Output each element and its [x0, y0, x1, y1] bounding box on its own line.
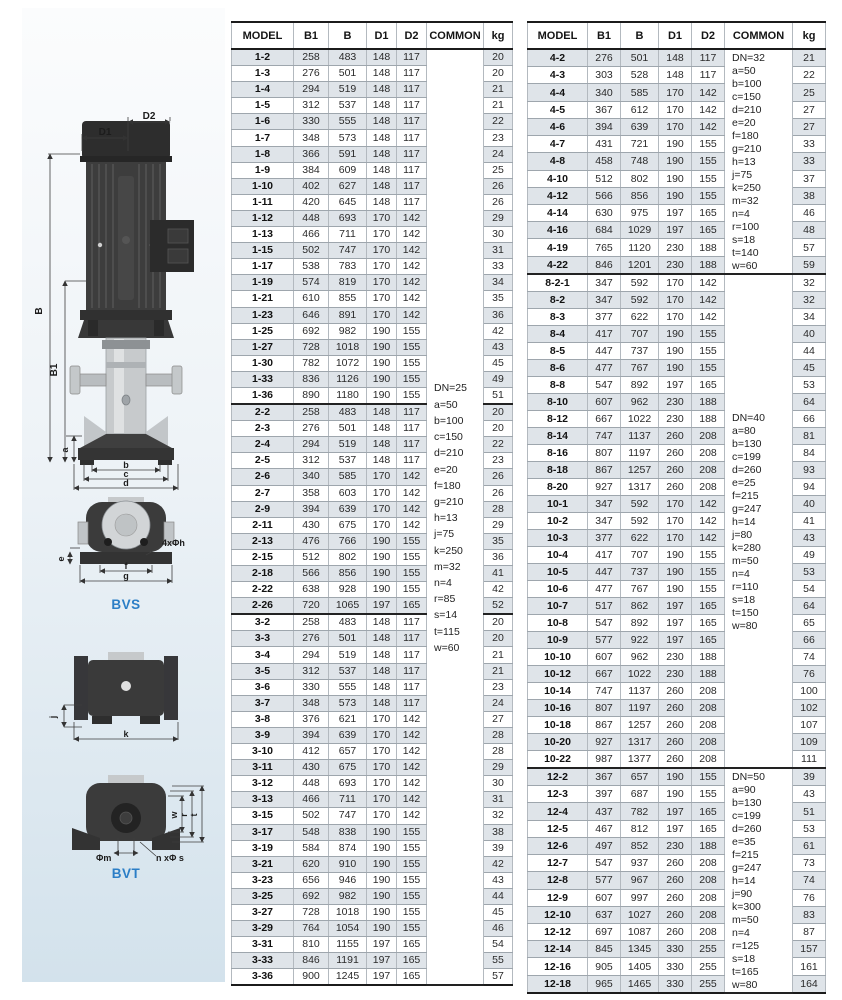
dimension-table-right-container: MODELB1BD1D2COMMONkg4-2276501148117DN=32… [527, 21, 825, 994]
common-dimension-line: s=14 [434, 607, 483, 623]
dim-label-t: t [189, 814, 199, 817]
value-cell: 148 [367, 82, 397, 98]
value-cell: 447 [588, 564, 621, 581]
value-cell: 867 [588, 717, 621, 734]
shackle [88, 320, 98, 336]
value-cell: 42 [484, 856, 513, 872]
model-cell: 3-3 [232, 631, 294, 647]
value-cell: 20 [484, 66, 513, 82]
model-cell: 10-10 [528, 649, 588, 666]
common-dimension-line: n=4 [732, 208, 792, 221]
value-cell: 190 [659, 547, 692, 564]
value-cell: 117 [397, 437, 427, 453]
value-cell: 592 [621, 274, 659, 292]
value-cell: 170 [367, 243, 397, 259]
value-cell: 64 [793, 394, 826, 411]
value-cell: 1257 [621, 462, 659, 479]
model-cell: 10-4 [528, 547, 588, 564]
value-cell: 117 [397, 82, 427, 98]
value-cell: 502 [294, 808, 329, 824]
value-cell: 260 [659, 855, 692, 872]
value-cell: 782 [621, 803, 659, 820]
dimension-table-left-container: MODELB1BD1D2COMMONkg1-2258483148117DN=25… [231, 21, 512, 986]
bolt-hole [140, 538, 148, 546]
value-cell: 155 [397, 566, 427, 582]
value-cell: 155 [397, 856, 427, 872]
value-cell: 21 [484, 82, 513, 98]
value-cell: 573 [329, 695, 367, 711]
value-cell: 466 [294, 792, 329, 808]
model-cell: 12-14 [528, 941, 588, 958]
value-cell: 190 [659, 581, 692, 598]
model-cell: 12-3 [528, 786, 588, 803]
pump-column [106, 338, 146, 434]
common-dimension-line: e=20 [434, 462, 483, 478]
value-cell: 29 [484, 210, 513, 226]
value-cell: 609 [329, 162, 367, 178]
value-cell: 197 [659, 377, 692, 394]
value-cell: 230 [659, 239, 692, 256]
column-header: COMMON [725, 22, 793, 49]
value-cell: 190 [659, 136, 692, 153]
model-cell: 3-25 [232, 888, 294, 904]
value-cell: 675 [329, 760, 367, 776]
value-cell: 61 [793, 837, 826, 854]
model-cell: 2-3 [232, 421, 294, 437]
value-cell: 512 [294, 549, 329, 565]
value-cell: 502 [294, 243, 329, 259]
value-cell: 38 [484, 824, 513, 840]
value-cell: 34 [793, 309, 826, 326]
model-cell: 1-13 [232, 227, 294, 243]
value-cell: 258 [294, 614, 329, 631]
value-cell: 208 [692, 700, 725, 717]
value-cell: 1317 [621, 734, 659, 751]
model-cell: 1-15 [232, 243, 294, 259]
value-cell: 517 [588, 598, 621, 615]
value-cell: 170 [659, 513, 692, 530]
value-cell: 812 [621, 820, 659, 837]
value-cell: 148 [367, 404, 397, 421]
common-dimension-line: d=260 [732, 823, 792, 836]
model-cell: 1-4 [232, 82, 294, 98]
value-cell: 458 [588, 153, 621, 170]
model-cell: 1-27 [232, 339, 294, 355]
value-cell: 165 [692, 598, 725, 615]
bolt-hole [104, 538, 112, 546]
model-cell: 3-19 [232, 840, 294, 856]
value-cell: 142 [397, 727, 427, 743]
motor-flange [80, 310, 172, 320]
value-cell: 721 [621, 136, 659, 153]
value-cell: 965 [588, 975, 621, 993]
model-cell: 10-12 [528, 666, 588, 683]
value-cell: 155 [397, 582, 427, 598]
value-cell: 845 [588, 941, 621, 958]
value-cell: 117 [692, 67, 725, 84]
value-cell: 117 [397, 194, 427, 210]
value-cell: 764 [294, 921, 329, 937]
common-dimension-line: m=50 [732, 555, 792, 568]
value-cell: 22 [484, 114, 513, 130]
column-header: D1 [367, 22, 397, 49]
value-cell: 430 [294, 517, 329, 533]
value-cell: 255 [692, 941, 725, 958]
value-cell: 170 [367, 485, 397, 501]
value-cell: 148 [367, 114, 397, 130]
model-cell: 8-10 [528, 394, 588, 411]
value-cell: 41 [793, 513, 826, 530]
model-cell: 8-2 [528, 292, 588, 309]
value-cell: 142 [692, 513, 725, 530]
value-cell: 637 [588, 906, 621, 923]
model-cell: 3-36 [232, 969, 294, 986]
value-cell: 29 [484, 760, 513, 776]
value-cell: 376 [294, 711, 329, 727]
value-cell: 170 [367, 711, 397, 727]
value-cell: 639 [329, 727, 367, 743]
model-cell: 2-9 [232, 501, 294, 517]
dim-label-r: r [179, 813, 189, 817]
value-cell: 208 [692, 479, 725, 496]
model-cell: 1-25 [232, 323, 294, 339]
value-cell: 592 [621, 292, 659, 309]
value-cell: 347 [588, 292, 621, 309]
value-cell: 394 [294, 501, 329, 517]
value-cell: 836 [294, 371, 329, 387]
model-cell: 12-4 [528, 803, 588, 820]
common-dimension-line: s=18 [732, 234, 792, 247]
common-dimension-line: b=100 [434, 413, 483, 429]
value-cell: 687 [621, 786, 659, 803]
value-cell: 36 [484, 307, 513, 323]
value-cell: 891 [329, 307, 367, 323]
model-cell: 10-3 [528, 530, 588, 547]
value-cell: 190 [659, 187, 692, 204]
model-cell: 3-29 [232, 921, 294, 937]
value-cell: 170 [367, 744, 397, 760]
header-row: MODELB1BD1D2COMMONkg [528, 22, 826, 49]
value-cell: 45 [793, 360, 826, 377]
value-cell: 117 [397, 404, 427, 421]
model-cell: 1-12 [232, 210, 294, 226]
model-cell: 12-16 [528, 958, 588, 975]
common-dimension-line: a=50 [732, 65, 792, 78]
value-cell: 53 [793, 820, 826, 837]
motor-plug [122, 236, 130, 244]
value-cell: 54 [793, 581, 826, 598]
value-cell: 987 [588, 751, 621, 769]
value-cell: 208 [692, 906, 725, 923]
model-cell: 4-10 [528, 170, 588, 187]
foot [140, 716, 160, 724]
base-plate [78, 448, 174, 460]
value-cell: 117 [397, 98, 427, 114]
model-cell: 1-6 [232, 114, 294, 130]
dim-label-j: j [48, 716, 58, 720]
value-cell: 35 [484, 291, 513, 307]
value-cell: 366 [294, 146, 329, 162]
value-cell: 197 [367, 937, 397, 953]
value-cell: 155 [397, 921, 427, 937]
value-cell: 1022 [621, 411, 659, 428]
value-cell: 190 [659, 170, 692, 187]
value-cell: 170 [367, 210, 397, 226]
value-cell: 35 [484, 533, 513, 549]
value-cell: 190 [659, 343, 692, 360]
value-cell: 142 [692, 292, 725, 309]
value-cell: 39 [484, 840, 513, 856]
value-cell: 519 [329, 437, 367, 453]
model-cell: 4-14 [528, 204, 588, 221]
value-cell: 208 [692, 428, 725, 445]
model-cell: 1-23 [232, 307, 294, 323]
value-cell: 430 [294, 760, 329, 776]
value-cell: 64 [793, 598, 826, 615]
value-cell: 117 [397, 631, 427, 647]
model-cell: 8-16 [528, 445, 588, 462]
value-cell: 667 [588, 666, 621, 683]
value-cell: 142 [397, 517, 427, 533]
model-cell: 2-15 [232, 549, 294, 565]
value-cell: 188 [692, 394, 725, 411]
value-cell: 612 [621, 101, 659, 118]
value-cell: 26 [484, 469, 513, 485]
value-cell: 208 [692, 855, 725, 872]
model-cell: 8-18 [528, 462, 588, 479]
value-cell: 190 [659, 768, 692, 786]
model-cell: 1-19 [232, 275, 294, 291]
common-dimension-line: DN=32 [732, 52, 792, 65]
value-cell: 585 [329, 469, 367, 485]
value-cell: 155 [397, 387, 427, 404]
model-cell: 10-5 [528, 564, 588, 581]
model-cell: 4-6 [528, 118, 588, 135]
motor-fan-cover [82, 121, 170, 159]
value-cell: 148 [659, 49, 692, 67]
value-cell: 330 [659, 941, 692, 958]
value-cell: 230 [659, 256, 692, 274]
value-cell: 190 [659, 564, 692, 581]
value-cell: 51 [793, 803, 826, 820]
model-cell: 3-27 [232, 904, 294, 920]
value-cell: 230 [659, 649, 692, 666]
model-cell: 10-7 [528, 598, 588, 615]
model-cell: 1-21 [232, 291, 294, 307]
value-cell: 258 [294, 404, 329, 421]
value-cell: 84 [793, 445, 826, 462]
value-cell: 330 [294, 679, 329, 695]
value-cell: 260 [659, 734, 692, 751]
value-cell: 148 [659, 67, 692, 84]
value-cell: 538 [294, 259, 329, 275]
dim-label-k: k [123, 729, 129, 739]
value-cell: 802 [621, 170, 659, 187]
common-dimension-line: DN=40 [732, 412, 792, 425]
model-cell: 10-14 [528, 683, 588, 700]
value-cell: 142 [692, 118, 725, 135]
value-cell: 66 [793, 411, 826, 428]
value-cell: 117 [397, 647, 427, 663]
value-cell: 30 [484, 227, 513, 243]
value-cell: 25 [793, 84, 826, 101]
value-cell: 1022 [621, 666, 659, 683]
value-cell: 21 [793, 49, 826, 67]
value-cell: 117 [397, 130, 427, 146]
value-cell: 170 [367, 760, 397, 776]
value-cell: 483 [329, 614, 367, 631]
model-cell: 3-5 [232, 663, 294, 679]
value-cell: 807 [588, 700, 621, 717]
value-cell: 982 [329, 888, 367, 904]
value-cell: 49 [793, 547, 826, 564]
value-cell: 260 [659, 479, 692, 496]
value-cell: 83 [793, 906, 826, 923]
value-cell: 1201 [621, 256, 659, 274]
value-cell: 892 [621, 615, 659, 632]
table-row: 12-2367657190155DN=50a=90b=130c=199d=260… [528, 768, 826, 786]
value-cell: 737 [621, 564, 659, 581]
model-cell: 8-2-1 [528, 274, 588, 292]
value-cell: 377 [588, 530, 621, 547]
value-cell: 170 [367, 275, 397, 291]
screw [98, 243, 102, 247]
value-cell: 501 [329, 631, 367, 647]
foot [92, 716, 112, 724]
value-cell: 303 [588, 67, 621, 84]
value-cell: 367 [588, 101, 621, 118]
value-cell: 117 [692, 49, 725, 67]
common-dimension-line: f=180 [434, 478, 483, 494]
value-cell: 155 [397, 824, 427, 840]
value-cell: 358 [294, 485, 329, 501]
common-dimension-line: m=32 [434, 559, 483, 575]
value-cell: 548 [294, 824, 329, 840]
value-cell: 377 [588, 309, 621, 326]
common-dimension-line: m=50 [732, 914, 792, 927]
value-cell: 148 [367, 162, 397, 178]
value-cell: 692 [294, 323, 329, 339]
model-cell: 3-15 [232, 808, 294, 824]
value-cell: 170 [659, 84, 692, 101]
value-cell: 577 [588, 632, 621, 649]
value-cell: 890 [294, 387, 329, 404]
value-cell: 657 [621, 768, 659, 786]
value-cell: 190 [367, 888, 397, 904]
value-cell: 111 [793, 751, 826, 769]
value-cell: 155 [397, 549, 427, 565]
column-header: COMMON [427, 22, 484, 49]
value-cell: 170 [659, 496, 692, 513]
value-cell: 170 [367, 517, 397, 533]
model-cell: 12-10 [528, 906, 588, 923]
value-cell: 188 [692, 411, 725, 428]
model-cell: 12-9 [528, 889, 588, 906]
model-cell: 1-7 [232, 130, 294, 146]
value-cell: 57 [484, 969, 513, 986]
value-cell: 767 [621, 360, 659, 377]
value-cell: 155 [692, 326, 725, 343]
common-dimension-line: c=150 [434, 429, 483, 445]
value-cell: 260 [659, 751, 692, 769]
value-cell: 621 [329, 711, 367, 727]
value-cell: 537 [329, 453, 367, 469]
model-cell: 1-17 [232, 259, 294, 275]
model-cell: 12-5 [528, 820, 588, 837]
value-cell: 497 [588, 837, 621, 854]
value-cell: 927 [588, 734, 621, 751]
value-cell: 21 [484, 647, 513, 663]
value-cell: 476 [294, 533, 329, 549]
value-cell: 997 [621, 889, 659, 906]
common-dimension-line: f=180 [732, 130, 792, 143]
value-cell: 867 [588, 462, 621, 479]
common-dimension-line: b=130 [732, 797, 792, 810]
value-cell: 197 [659, 820, 692, 837]
model-cell: 4-19 [528, 239, 588, 256]
dim-label-b-total: B [34, 307, 45, 314]
value-cell: 117 [397, 679, 427, 695]
jk-side-view-drawing: j k [48, 652, 178, 740]
side-flange [74, 656, 88, 720]
value-cell: 40 [793, 326, 826, 343]
model-cell: 3-11 [232, 760, 294, 776]
value-cell: 1054 [329, 921, 367, 937]
model-cell: 8-3 [528, 309, 588, 326]
value-cell: 46 [793, 204, 826, 221]
model-cell: 2-5 [232, 453, 294, 469]
value-cell: 190 [367, 582, 397, 598]
value-cell: 148 [367, 663, 397, 679]
value-cell: 155 [692, 343, 725, 360]
common-dimension-line: e=25 [732, 477, 792, 490]
value-cell: 1072 [329, 355, 367, 371]
value-cell: 155 [692, 170, 725, 187]
pump-dimension-drawings: D1 D2 B B1 a b c d [22, 8, 225, 982]
value-cell: 165 [692, 222, 725, 239]
bvt-flange-drawing: Φm n xΦ s w r t BVT [72, 775, 204, 881]
value-cell: 208 [692, 734, 725, 751]
value-cell: 190 [659, 786, 692, 803]
value-cell: 117 [397, 178, 427, 194]
value-cell: 622 [621, 309, 659, 326]
value-cell: 190 [659, 360, 692, 377]
value-cell: 155 [692, 153, 725, 170]
value-cell: 260 [659, 872, 692, 889]
value-cell: 87 [793, 923, 826, 940]
column-header: B [329, 22, 367, 49]
common-dimension-line: k=250 [434, 543, 483, 559]
suction-ring-inner [115, 514, 137, 536]
value-cell: 165 [397, 937, 427, 953]
junction-box-port [168, 229, 188, 243]
common-dimension-line: k=250 [732, 182, 792, 195]
model-cell: 10-20 [528, 734, 588, 751]
value-cell: 170 [367, 792, 397, 808]
value-cell: 782 [294, 355, 329, 371]
value-cell: 1257 [621, 717, 659, 734]
common-dimension-line: g=210 [434, 494, 483, 510]
bvs-flange-drawing: e 4xΦh f g BVS [56, 497, 185, 612]
model-cell: 10-9 [528, 632, 588, 649]
value-cell: 170 [367, 808, 397, 824]
value-cell: 667 [588, 411, 621, 428]
value-cell: 1120 [621, 239, 659, 256]
value-cell: 928 [329, 582, 367, 598]
value-cell: 728 [294, 339, 329, 355]
value-cell: 591 [329, 146, 367, 162]
value-cell: 260 [659, 462, 692, 479]
